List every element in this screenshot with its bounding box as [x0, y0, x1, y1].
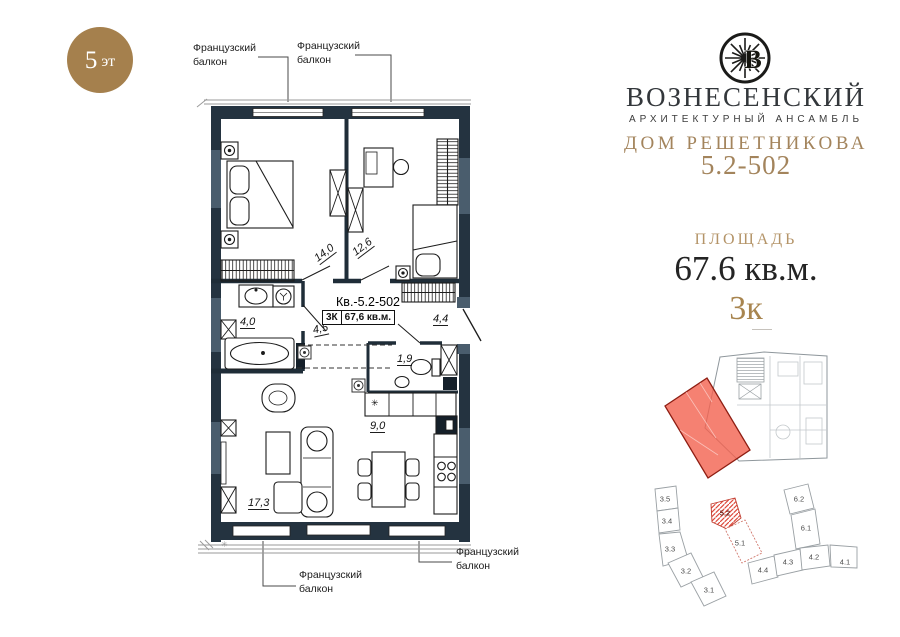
building-label-5-1[interactable]: 5.1	[735, 539, 745, 548]
rooms-count-value: 3к	[600, 290, 892, 328]
apartment-info-box: 3К 67,6 кв.м.	[322, 310, 395, 325]
room-area-entry-hall: 4,4	[433, 313, 448, 326]
building-label-6-1[interactable]: 6.1	[801, 524, 811, 533]
french-balcony-callout-top-left: Французский балкон	[193, 42, 263, 69]
brand-tagline: АРХИТЕКТУРНЫЙ АНСАМБЛЬ	[600, 114, 892, 125]
french-balcony-callout-bottom-right: Французский балкон	[456, 546, 526, 573]
floor-number: 5	[85, 48, 98, 73]
building-label-3-3[interactable]: 3.3	[665, 545, 675, 554]
building-label-6-2[interactable]: 6.2	[794, 495, 804, 504]
floor-suffix: эт	[101, 53, 115, 71]
room-area-living-room: 17,3	[248, 497, 269, 510]
site-minimap[interactable]	[640, 345, 870, 620]
rooms-count-badge: 3К	[322, 310, 342, 325]
building-label-5-2[interactable]: 5.2	[720, 509, 730, 518]
french-balcony-callout-top-right: Французский балкон	[297, 40, 367, 67]
room-area-kitchen: 9,0	[370, 420, 385, 433]
floor-plan-drawing	[185, 40, 520, 610]
area-badge: 67,6 кв.м.	[342, 310, 395, 325]
floor-badge: 5 эт	[67, 27, 133, 93]
building-label-3-5[interactable]: 3.5	[660, 495, 670, 504]
brand-monogram: В	[744, 45, 761, 74]
unit-code: 5.2-502	[600, 150, 892, 181]
building-label-4-1[interactable]: 4.1	[840, 558, 850, 567]
fine-print	[752, 329, 772, 332]
fridge-icon: ✳	[371, 399, 379, 408]
building-label-4-4[interactable]: 4.4	[758, 566, 768, 575]
building-label-3-4[interactable]: 3.4	[662, 517, 672, 526]
total-area-value: 67.6 кв.м.	[600, 249, 892, 289]
brand-name: ВОЗНЕСЕНСКИЙ	[600, 82, 892, 113]
building-label-3-2[interactable]: 3.2	[681, 567, 691, 576]
apartment-number-label: Кв.-5.2-502	[318, 295, 418, 309]
corner-mark-icon: ✳	[221, 541, 228, 549]
room-area-bathroom: 4,0	[240, 316, 255, 329]
building-label-4-3[interactable]: 4.3	[783, 558, 793, 567]
building-label-4-2[interactable]: 4.2	[809, 553, 819, 562]
brand-emblem: В	[715, 28, 775, 88]
french-balcony-callout-bottom-left: Французский балкон	[299, 569, 369, 596]
flat-card-page: 5 эт	[0, 0, 900, 637]
area-section-label: ПЛОЩАДЬ	[600, 231, 892, 249]
room-area-wc: 1,9	[397, 353, 412, 366]
building-label-3-1[interactable]: 3.1	[704, 586, 714, 595]
